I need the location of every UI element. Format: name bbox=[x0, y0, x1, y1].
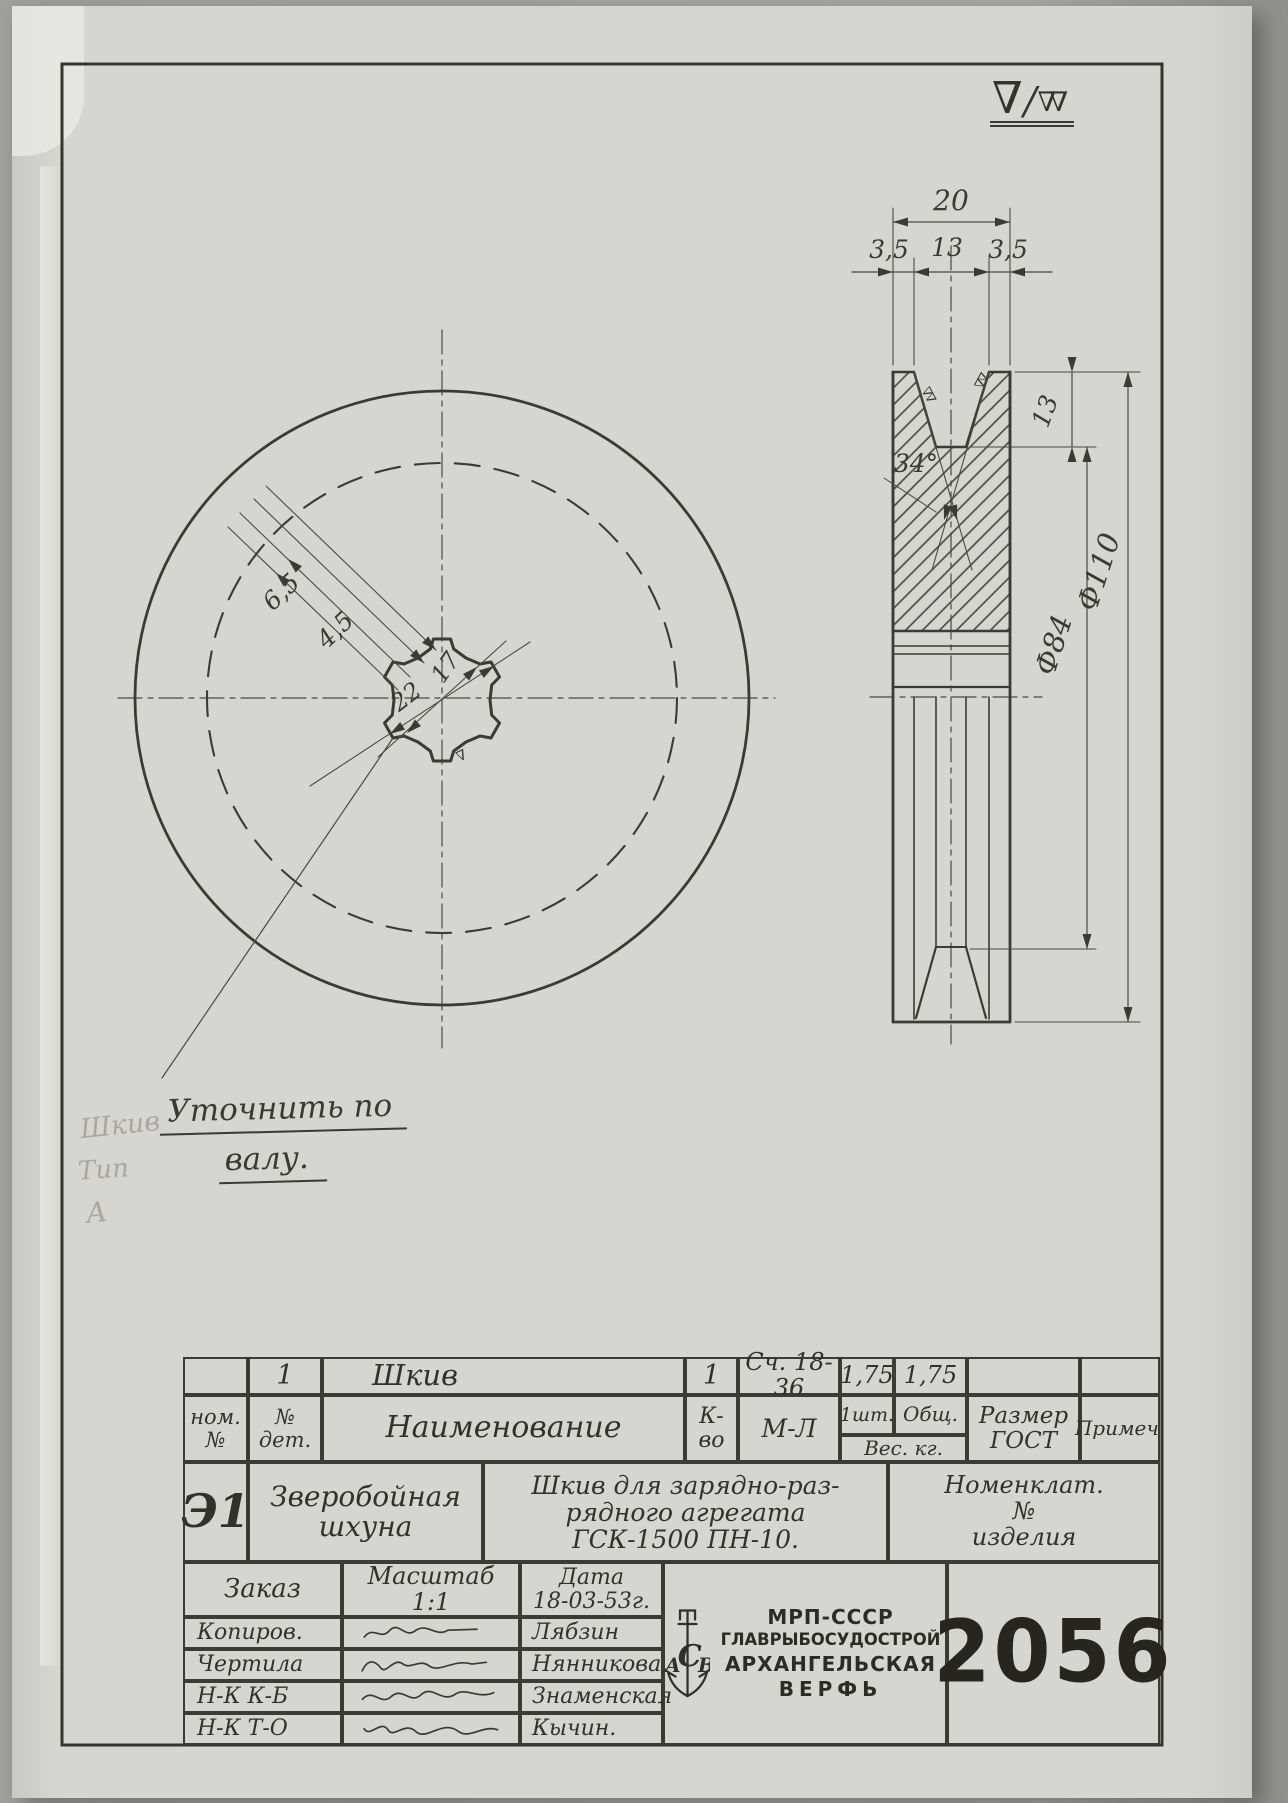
project-desc-line1: Шкив для зарядно-раз- bbox=[531, 1472, 839, 1499]
parts-empty-cell bbox=[183, 1357, 248, 1395]
sig-name-nk-to: Кычин. bbox=[520, 1713, 663, 1745]
logo-letter-v: В bbox=[697, 1654, 710, 1677]
sig-scribble-copier bbox=[342, 1617, 520, 1649]
header-name: Наименование bbox=[322, 1395, 685, 1462]
pencil-note-2: Тип bbox=[77, 1153, 130, 1186]
dim-groove-bottom-diameter: Ф84 bbox=[1028, 611, 1079, 680]
date-label: Дата bbox=[559, 1566, 624, 1590]
front-view: 6,5 4,5 17 22 ∇ bbox=[118, 330, 775, 1078]
dim-tooth-outer: 6,5 bbox=[257, 568, 306, 616]
note-line-1: Уточнить по bbox=[159, 1087, 407, 1135]
sig-scribble-nk-to bbox=[342, 1713, 520, 1745]
signature-icon bbox=[351, 1715, 511, 1743]
date-value: 18-03-53г. bbox=[533, 1590, 650, 1614]
dim-flange-left: 3,5 bbox=[869, 235, 909, 264]
shipyard-stamp-cell: С А В МРП-СССР ГЛАВРЫБОСУДОСТРОЙ АРХАНГЕ… bbox=[663, 1562, 947, 1745]
organization-block: МРП-СССР ГЛАВРЫБОСУДОСТРОЙ АРХАНГЕЛЬСКАЯ… bbox=[716, 1605, 945, 1701]
parts-name: Шкив bbox=[322, 1357, 685, 1395]
finish-slash: / bbox=[1024, 82, 1037, 120]
project-code: Э1 bbox=[183, 1462, 248, 1562]
finish-double-triangle-icon: ∇∇ bbox=[1038, 87, 1069, 119]
header-nom-no: ном. № bbox=[183, 1395, 248, 1462]
drawing-number: 2056 bbox=[933, 1607, 1173, 1700]
sig-name-copier: Лябзин bbox=[520, 1617, 663, 1649]
dim-groove-depth: 13 bbox=[1026, 391, 1064, 431]
org-line-2: ГЛАВРЫБОСУДОСТРОЙ bbox=[721, 1630, 941, 1651]
header-size-line2: ГОСТ bbox=[990, 1429, 1057, 1454]
nomenclature-line2: № bbox=[1013, 1499, 1036, 1525]
parts-remark-empty bbox=[1080, 1357, 1160, 1395]
project-desc-line3: ГСК-1500 ПН-10. bbox=[572, 1526, 799, 1553]
header-det-line1: № bbox=[275, 1406, 295, 1429]
org-line-4: ВЕРФЬ bbox=[779, 1677, 883, 1702]
order-label: Заказ bbox=[183, 1562, 342, 1617]
sig-role-drafter: Чертила bbox=[183, 1649, 342, 1681]
sig-name-drafter: Нянникова. bbox=[520, 1649, 663, 1681]
scanned-blueprint-page: { "finish_symbol": {"main": "∇", "slash"… bbox=[0, 0, 1288, 1803]
header-size-line1: Размер bbox=[979, 1404, 1068, 1429]
dim-outer-diameter: Ф110 bbox=[1070, 529, 1127, 615]
project-object-line1: Зверобойная bbox=[270, 1482, 461, 1512]
parts-weight-one: 1,75 bbox=[840, 1357, 894, 1395]
signature-icon bbox=[351, 1619, 511, 1647]
shipyard-anchor-logo-icon: С А В bbox=[665, 1594, 710, 1714]
header-per-one: 1шт. bbox=[840, 1395, 894, 1435]
parts-det-no: 1 bbox=[248, 1357, 322, 1395]
hole-finish-mark-icon: ∇ bbox=[454, 747, 470, 766]
side-section-view: ∇∇ ∇∇ 20 3,5 13 3,5 34° 13 Ф bbox=[852, 184, 1140, 1044]
sig-name-nk-kb: Знаменская bbox=[520, 1681, 663, 1713]
sig-scribble-nk-kb bbox=[342, 1681, 520, 1713]
dim-groove-angle: 34° bbox=[894, 449, 938, 478]
org-line-3: АРХАНГЕЛЬСКАЯ bbox=[725, 1652, 936, 1677]
parts-weight-total: 1,75 bbox=[894, 1357, 967, 1395]
header-size-gost: Размер ГОСТ bbox=[967, 1395, 1080, 1462]
dim-flange-right: 3,5 bbox=[988, 235, 1028, 264]
header-nom-line1: ном. bbox=[190, 1406, 241, 1429]
title-block: 1 Шкив 1 Сч. 18-36 1,75 1,75 ном. № № де… bbox=[183, 1357, 1160, 1745]
scale-label: Масштаб bbox=[368, 1564, 495, 1590]
scale-cell: Масштаб 1:1 bbox=[342, 1562, 520, 1617]
header-weight: Вес. кг. bbox=[840, 1435, 967, 1462]
drawing-number-cell: 2056 bbox=[947, 1562, 1160, 1745]
surface-finish-symbol: ∇ / ∇∇ bbox=[990, 78, 1074, 127]
dim-groove-top: 13 bbox=[931, 233, 963, 262]
sig-role-nk-to: Н-К Т-О bbox=[183, 1713, 342, 1745]
header-det-line2: дет. bbox=[259, 1429, 311, 1452]
header-det-no: № дет. bbox=[248, 1395, 322, 1462]
parts-size-empty bbox=[967, 1357, 1080, 1395]
signature-icon bbox=[351, 1683, 511, 1711]
scale-value: 1:1 bbox=[412, 1590, 451, 1616]
header-qty: К-во bbox=[685, 1395, 738, 1462]
nomenclature-line3: изделия bbox=[972, 1525, 1077, 1551]
logo-letter-a: А bbox=[665, 1654, 681, 1677]
project-object: Зверобойная шхуна bbox=[248, 1462, 483, 1562]
sig-scribble-drafter bbox=[342, 1649, 520, 1681]
header-total: Общ. bbox=[894, 1395, 967, 1435]
note-leader-line bbox=[162, 738, 393, 1078]
header-material: М-Л bbox=[738, 1395, 840, 1462]
project-nomenclature: Номенклат. № изделия bbox=[888, 1462, 1160, 1562]
parts-material: Сч. 18-36 bbox=[738, 1357, 840, 1395]
project-description: Шкив для зарядно-раз- рядного агрегата Г… bbox=[483, 1462, 888, 1562]
org-line-1: МРП-СССР bbox=[767, 1605, 893, 1630]
shaft-note: Уточнить по валу. bbox=[159, 1086, 451, 1186]
dim-width-20: 20 bbox=[932, 184, 969, 217]
finish-triangle-icon: ∇ bbox=[992, 78, 1023, 120]
signature-icon bbox=[351, 1651, 511, 1679]
project-object-line2: шхуна bbox=[319, 1512, 413, 1542]
sig-role-copier: Копиров. bbox=[183, 1617, 342, 1649]
nomenclature-line1: Номенклат. bbox=[944, 1473, 1104, 1499]
pencil-note-3: А bbox=[84, 1195, 109, 1230]
parts-qty: 1 bbox=[685, 1357, 738, 1395]
header-remark: Примеч. bbox=[1080, 1395, 1160, 1462]
sig-role-nk-kb: Н-К К-Б bbox=[183, 1681, 342, 1713]
project-desc-line2: рядного агрегата bbox=[565, 1499, 805, 1526]
header-nom-line2: № bbox=[206, 1429, 226, 1452]
note-line-2: валу. bbox=[218, 1139, 327, 1184]
date-cell: Дата 18-03-53г. bbox=[520, 1562, 663, 1617]
